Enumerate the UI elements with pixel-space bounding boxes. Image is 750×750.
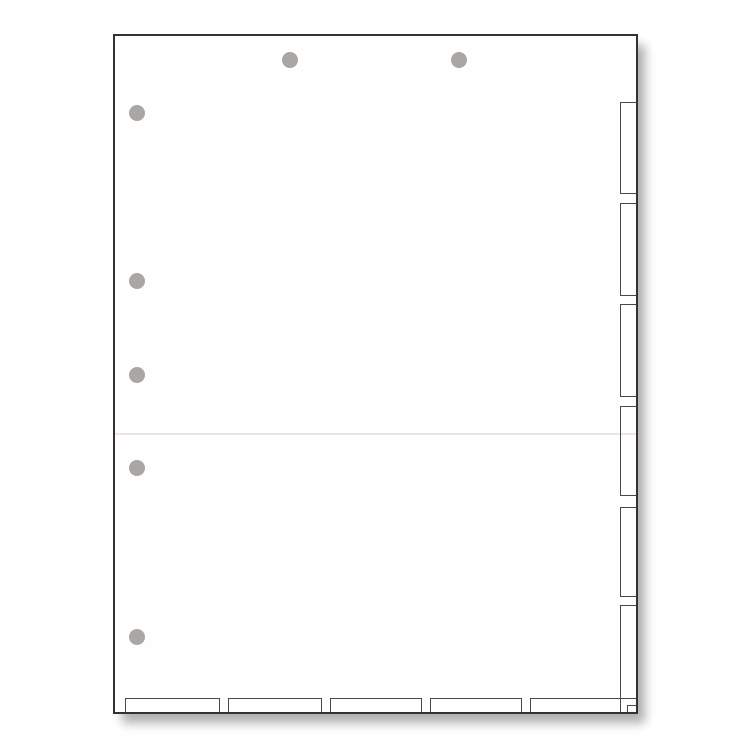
right-side-tab-6 [620,605,636,699]
right-side-tab-4 [620,406,636,496]
right-side-tab-3 [620,304,636,397]
right-side-tab-5 [620,507,636,597]
bottom-tab-3 [330,698,422,712]
fold-line [115,433,636,435]
bottom-tab-2 [228,698,322,712]
left-punch-hole-2 [129,273,145,289]
left-punch-hole-1 [129,105,145,121]
product-photo-background [0,0,750,750]
bottom-tab-5 [530,698,621,712]
right-side-tab-2 [620,203,636,296]
left-punch-hole-4 [129,460,145,476]
right-side-tab-1 [620,102,636,194]
top-punch-hole-1 [282,52,298,68]
left-punch-hole-3 [129,367,145,383]
top-punch-hole-2 [451,52,467,68]
bottom-tab-1 [125,698,220,712]
corner-notch-tab [627,705,636,712]
left-punch-hole-5 [129,629,145,645]
chart-divider-sheet [113,34,638,714]
bottom-tab-4 [430,698,522,712]
